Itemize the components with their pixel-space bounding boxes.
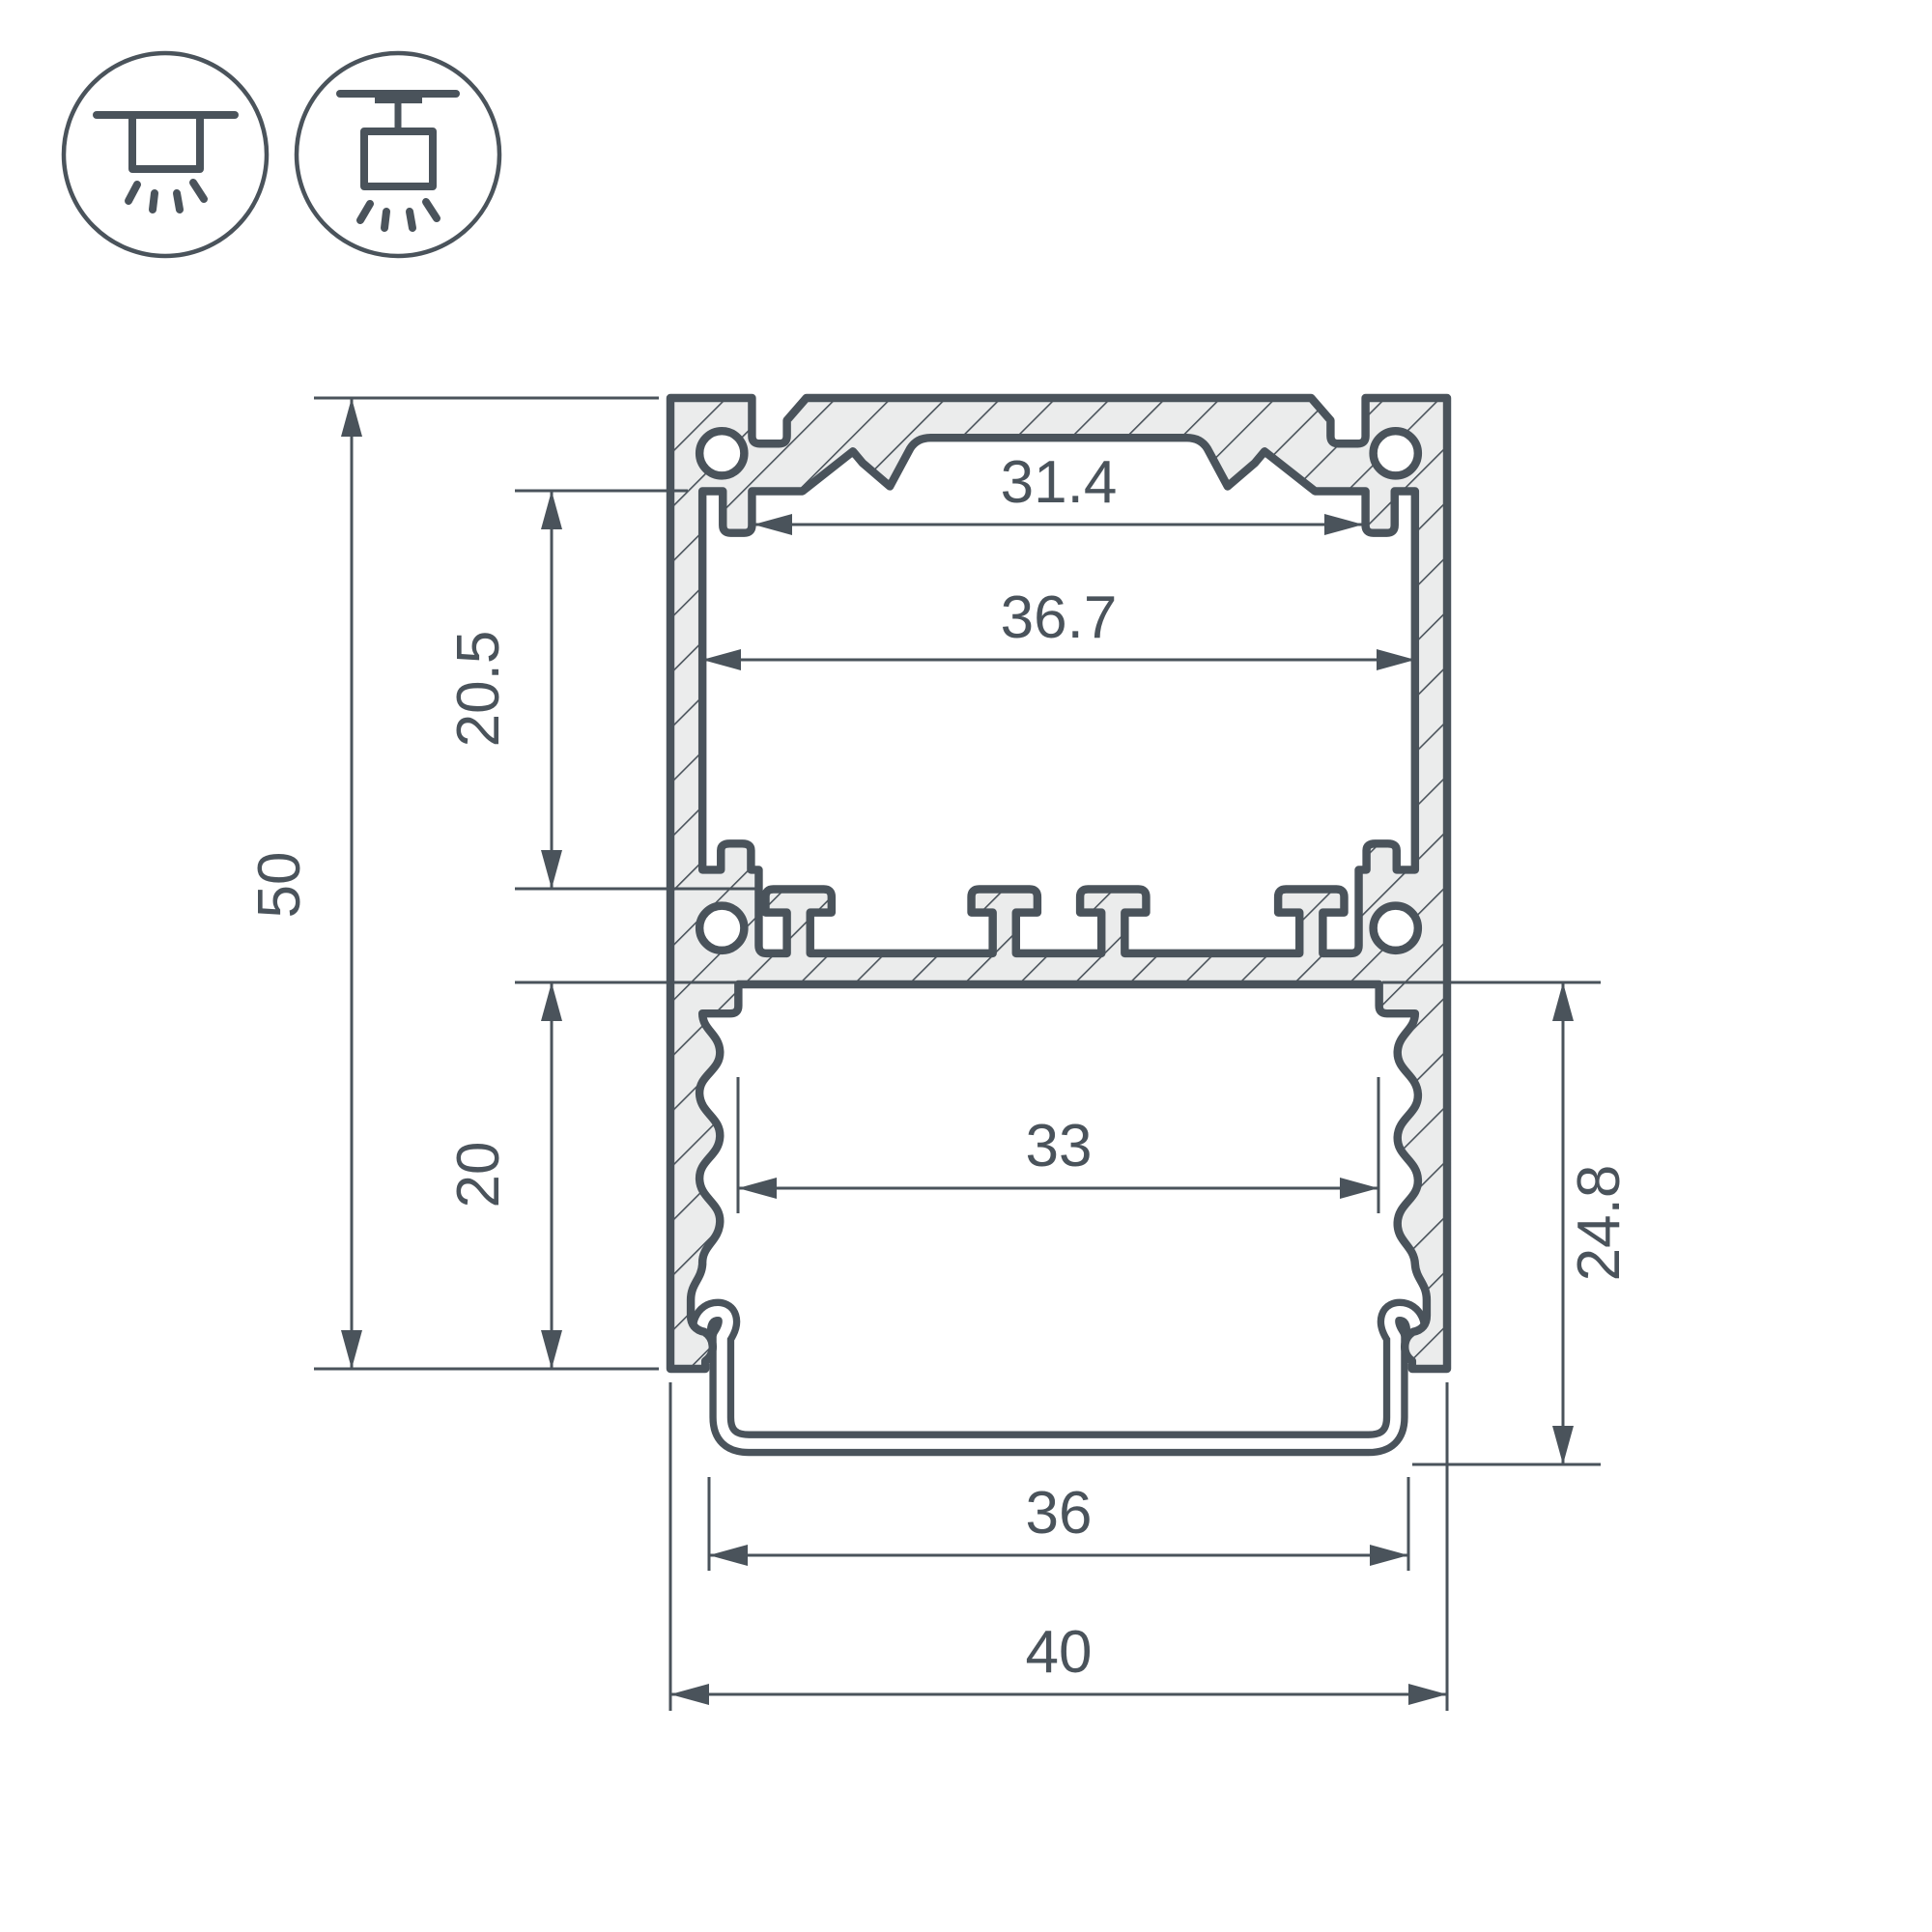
- dim-upper-inner-width: 36.7: [702, 584, 1415, 670]
- screw-port-top-right: [1374, 431, 1418, 475]
- dim-overall-height: 50: [246, 398, 362, 1369]
- dim-top-slot-label: 31.4: [1001, 449, 1118, 516]
- screw-port-mid-left: [699, 906, 744, 951]
- dim-diffuser-depth-label: 24.8: [1566, 1165, 1633, 1282]
- dim-upper-section-label: 20.5: [445, 631, 512, 748]
- dim-diffuser-width: 36: [709, 1480, 1408, 1566]
- screw-port-mid-right: [1374, 906, 1418, 951]
- aluminum-extrusion: [670, 398, 1447, 1369]
- surface-ceiling-mount-icon: [64, 53, 267, 256]
- diffuser-cover: [701, 1311, 1415, 1443]
- dim-lower-inner-width: 33: [738, 1113, 1378, 1199]
- icon-circle: [297, 53, 499, 256]
- dim-lower-section-height: 20: [445, 982, 562, 1369]
- dim-lower-section-label: 20: [445, 1142, 512, 1208]
- screw-port-top-left: [699, 431, 744, 475]
- dim-overall-width: 40: [670, 1619, 1447, 1705]
- dim-overall-height-label: 50: [246, 852, 313, 919]
- pendant-ceiling-mount-icon: [297, 53, 499, 256]
- light-rays: [360, 202, 437, 228]
- dim-upper-section-height: 20.5: [445, 491, 562, 889]
- profile-technical-drawing: 50 20.5 20 24.8 31.4: [0, 0, 1932, 1932]
- icon-circle: [64, 53, 267, 256]
- dim-diffuser-depth: 24.8: [1552, 982, 1633, 1464]
- profile-cross-section: [670, 398, 1447, 1443]
- dim-upper-inner-label: 36.7: [1001, 584, 1118, 651]
- dim-lower-inner-label: 33: [1026, 1113, 1093, 1179]
- luminaire-box: [364, 131, 433, 186]
- luminaire-box: [132, 115, 200, 169]
- drawing-page: 50 20.5 20 24.8 31.4: [0, 0, 1932, 1932]
- dim-diffuser-width-label: 36: [1026, 1480, 1093, 1547]
- light-rays: [128, 183, 204, 210]
- dim-overall-width-label: 40: [1026, 1619, 1093, 1686]
- mounting-icons: [64, 53, 499, 256]
